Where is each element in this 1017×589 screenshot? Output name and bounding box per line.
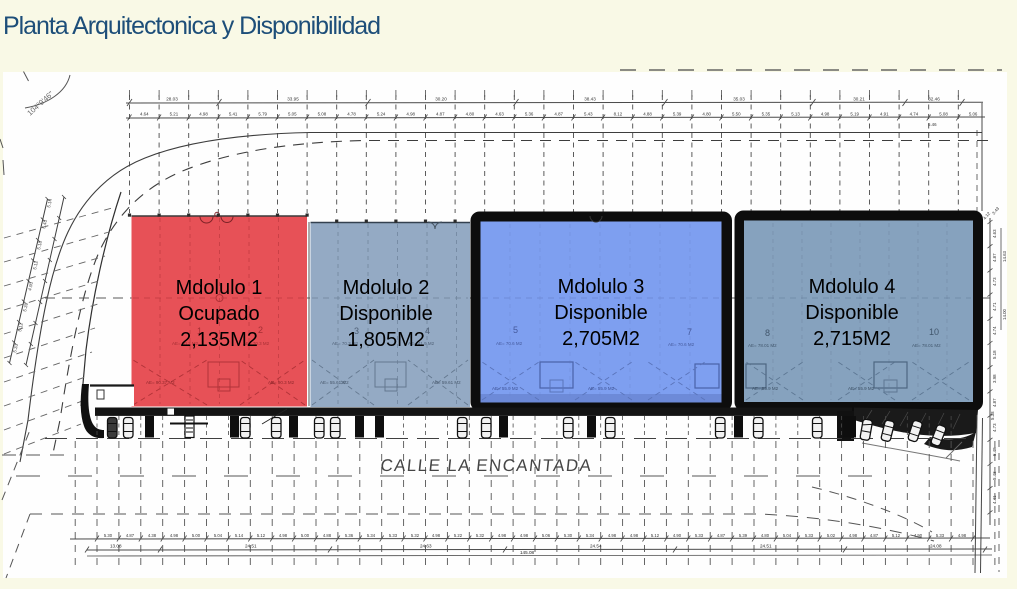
svg-text:24.51: 24.51	[245, 544, 257, 549]
svg-text:4.63: 4.63	[495, 112, 504, 117]
svg-text:5.33: 5.33	[695, 533, 704, 538]
svg-text:CALLE LA ENCANTADA: CALLE LA ENCANTADA	[380, 456, 594, 475]
svg-text:Disponible: Disponible	[805, 302, 898, 324]
svg-text:5.46: 5.46	[928, 122, 937, 127]
svg-text:AE= 90.37 M2: AE= 90.37 M2	[146, 380, 175, 385]
svg-text:5.36: 5.36	[345, 533, 354, 538]
svg-text:AE= 78.01 M2: AE= 78.01 M2	[748, 343, 777, 348]
svg-text:Disponible: Disponible	[339, 303, 432, 325]
svg-text:5.12: 5.12	[892, 533, 901, 538]
svg-text:5.18: 5.18	[992, 350, 997, 359]
svg-text:4.98: 4.98	[170, 533, 179, 538]
svg-text:Mdolulo 4: Mdolulo 4	[809, 276, 896, 298]
svg-text:4.78: 4.78	[347, 112, 356, 117]
svg-text:5.39: 5.39	[673, 112, 682, 117]
svg-text:AE= 90.3 M2: AE= 90.3 M2	[268, 380, 295, 385]
svg-text:4.98: 4.98	[520, 533, 529, 538]
svg-text:4.63: 4.63	[992, 229, 997, 238]
svg-text:5.04: 5.04	[214, 533, 223, 538]
svg-text:4.98: 4.98	[279, 533, 288, 538]
svg-text:4.41: 4.41	[992, 495, 997, 504]
svg-text:5.22: 5.22	[454, 533, 463, 538]
svg-text:4.90: 4.90	[673, 533, 682, 538]
svg-text:5.30: 5.30	[564, 533, 573, 538]
svg-text:5.05: 5.05	[288, 112, 297, 117]
svg-text:3.98: 3.98	[992, 374, 997, 383]
svg-text:5.24: 5.24	[377, 112, 386, 117]
svg-text:4.87: 4.87	[992, 253, 997, 262]
svg-text:5.79: 5.79	[258, 112, 267, 117]
svg-text:5.08: 5.08	[939, 112, 948, 117]
svg-text:Mdolulo 1: Mdolulo 1	[176, 277, 263, 299]
svg-text:24.63: 24.63	[420, 544, 432, 549]
svg-text:AE= 55.9 M2: AE= 55.9 M2	[848, 386, 875, 391]
svg-text:2,135M2: 2,135M2	[180, 329, 258, 351]
svg-text:2: 2	[258, 325, 263, 335]
svg-text:5.48: 5.48	[992, 447, 997, 456]
svg-text:32.46: 32.46	[928, 97, 940, 102]
svg-text:5.19: 5.19	[850, 112, 859, 117]
svg-text:5.21: 5.21	[170, 112, 179, 117]
svg-text:AE= 59.61 M2: AE= 59.61 M2	[432, 380, 461, 385]
svg-text:AE= 55.9 M2: AE= 55.9 M2	[492, 386, 519, 391]
svg-text:5.06: 5.06	[969, 112, 978, 117]
svg-text:4.73: 4.73	[992, 423, 997, 432]
svg-text:38.43: 38.43	[584, 97, 596, 102]
svg-text:Disponible: Disponible	[554, 302, 647, 324]
svg-text:5.34: 5.34	[586, 533, 595, 538]
svg-text:4.87: 4.87	[126, 533, 135, 538]
svg-text:4.38: 4.38	[148, 533, 157, 538]
svg-text:10: 10	[929, 327, 939, 337]
svg-text:4: 4	[425, 326, 430, 336]
svg-text:4.87: 4.87	[717, 533, 726, 538]
svg-text:5.12: 5.12	[257, 533, 266, 538]
svg-text:4.88: 4.88	[323, 533, 332, 538]
svg-text:4.73: 4.73	[992, 277, 997, 286]
svg-text:4.64: 4.64	[140, 112, 149, 117]
svg-text:24.54: 24.54	[590, 544, 602, 549]
svg-text:5.33: 5.33	[389, 533, 398, 538]
svg-text:5.36: 5.36	[525, 112, 534, 117]
svg-text:5.32: 5.32	[411, 533, 420, 538]
svg-text:AE= 78.01 M2: AE= 78.01 M2	[912, 343, 941, 348]
svg-text:4.88: 4.88	[643, 112, 652, 117]
svg-text:4.98: 4.98	[821, 112, 830, 117]
svg-text:4.98: 4.98	[406, 112, 415, 117]
svg-text:5.39: 5.39	[739, 533, 748, 538]
svg-text:24.08: 24.08	[930, 544, 942, 549]
svg-text:5.34: 5.34	[367, 533, 376, 538]
svg-text:5.43: 5.43	[584, 112, 593, 117]
svg-text:1,805M2: 1,805M2	[347, 329, 425, 351]
svg-text:AE= 70.6 M2: AE= 70.6 M2	[668, 342, 695, 347]
svg-text:4.80: 4.80	[761, 533, 770, 538]
svg-text:5.14: 5.14	[235, 533, 244, 538]
svg-text:4.71: 4.71	[992, 302, 997, 311]
svg-text:5.50: 5.50	[732, 112, 741, 117]
svg-text:4.80: 4.80	[466, 112, 475, 117]
svg-text:8.12: 8.12	[614, 112, 623, 117]
svg-text:2,715M2: 2,715M2	[813, 328, 891, 350]
svg-text:4.98: 4.98	[608, 533, 617, 538]
svg-text:35.03: 35.03	[733, 97, 745, 102]
svg-text:5: 5	[513, 325, 518, 335]
svg-text:4.87: 4.87	[436, 112, 445, 117]
svg-text:5.32: 5.32	[476, 533, 485, 538]
svg-text:4.98: 4.98	[498, 533, 507, 538]
svg-text:4.87: 4.87	[992, 398, 997, 407]
svg-text:4.98: 4.98	[432, 533, 441, 538]
svg-text:5.08: 5.08	[318, 112, 327, 117]
svg-text:8: 8	[765, 328, 770, 338]
svg-text:4.74: 4.74	[992, 326, 997, 335]
svg-text:2,705M2: 2,705M2	[562, 328, 640, 350]
svg-text:5.00: 5.00	[301, 533, 310, 538]
svg-text:30.20: 30.20	[435, 97, 447, 102]
svg-text:24.51: 24.51	[760, 544, 772, 549]
svg-text:4.74: 4.74	[910, 112, 919, 117]
svg-text:4.91: 4.91	[880, 112, 889, 117]
svg-text:5.30: 5.30	[104, 533, 113, 538]
svg-text:14.00: 14.00	[1002, 308, 1007, 320]
svg-text:5.33: 5.33	[805, 533, 814, 538]
svg-text:5.12: 5.12	[651, 533, 660, 538]
svg-text:4.98: 4.98	[958, 533, 967, 538]
svg-text:33.95: 33.95	[287, 97, 299, 102]
svg-text:4.98: 4.98	[630, 533, 639, 538]
svg-text:5.43: 5.43	[992, 471, 997, 480]
svg-text:5.33: 5.33	[936, 533, 945, 538]
svg-text:4.87: 4.87	[870, 533, 879, 538]
svg-text:Mdolulo 2: Mdolulo 2	[343, 277, 430, 299]
svg-text:AE= 55.9 M2: AE= 55.9 M2	[752, 386, 779, 391]
svg-text:4.87: 4.87	[554, 112, 563, 117]
svg-text:AE= 70.6 M2: AE= 70.6 M2	[496, 341, 523, 346]
svg-text:5.13: 5.13	[791, 112, 800, 117]
svg-text:4.98: 4.98	[849, 533, 858, 538]
svg-text:13.08: 13.08	[110, 544, 122, 549]
svg-text:4.80: 4.80	[702, 112, 711, 117]
svg-text:5.00: 5.00	[192, 533, 201, 538]
svg-text:AE= 55.9 M2: AE= 55.9 M2	[588, 386, 615, 391]
svg-text:4.98: 4.98	[199, 112, 208, 117]
svg-text:7: 7	[687, 327, 692, 337]
svg-text:AE= 55.61 M2: AE= 55.61 M2	[320, 380, 349, 385]
svg-text:5.33: 5.33	[990, 411, 995, 420]
svg-text:Mdolulo 3: Mdolulo 3	[558, 276, 645, 298]
svg-text:5.02: 5.02	[827, 533, 836, 538]
svg-text:14.63: 14.63	[1002, 250, 1007, 262]
svg-text:28.03: 28.03	[166, 97, 178, 102]
svg-text:5.35: 5.35	[762, 112, 771, 117]
svg-text:5.04: 5.04	[783, 533, 792, 538]
svg-text:5.41: 5.41	[229, 112, 238, 117]
svg-text:30.21: 30.21	[853, 97, 865, 102]
svg-text:Ocupado: Ocupado	[178, 303, 259, 325]
svg-text:4.90: 4.90	[914, 533, 923, 538]
svg-text:145.08: 145.08	[520, 550, 534, 555]
svg-text:5.06: 5.06	[542, 533, 551, 538]
